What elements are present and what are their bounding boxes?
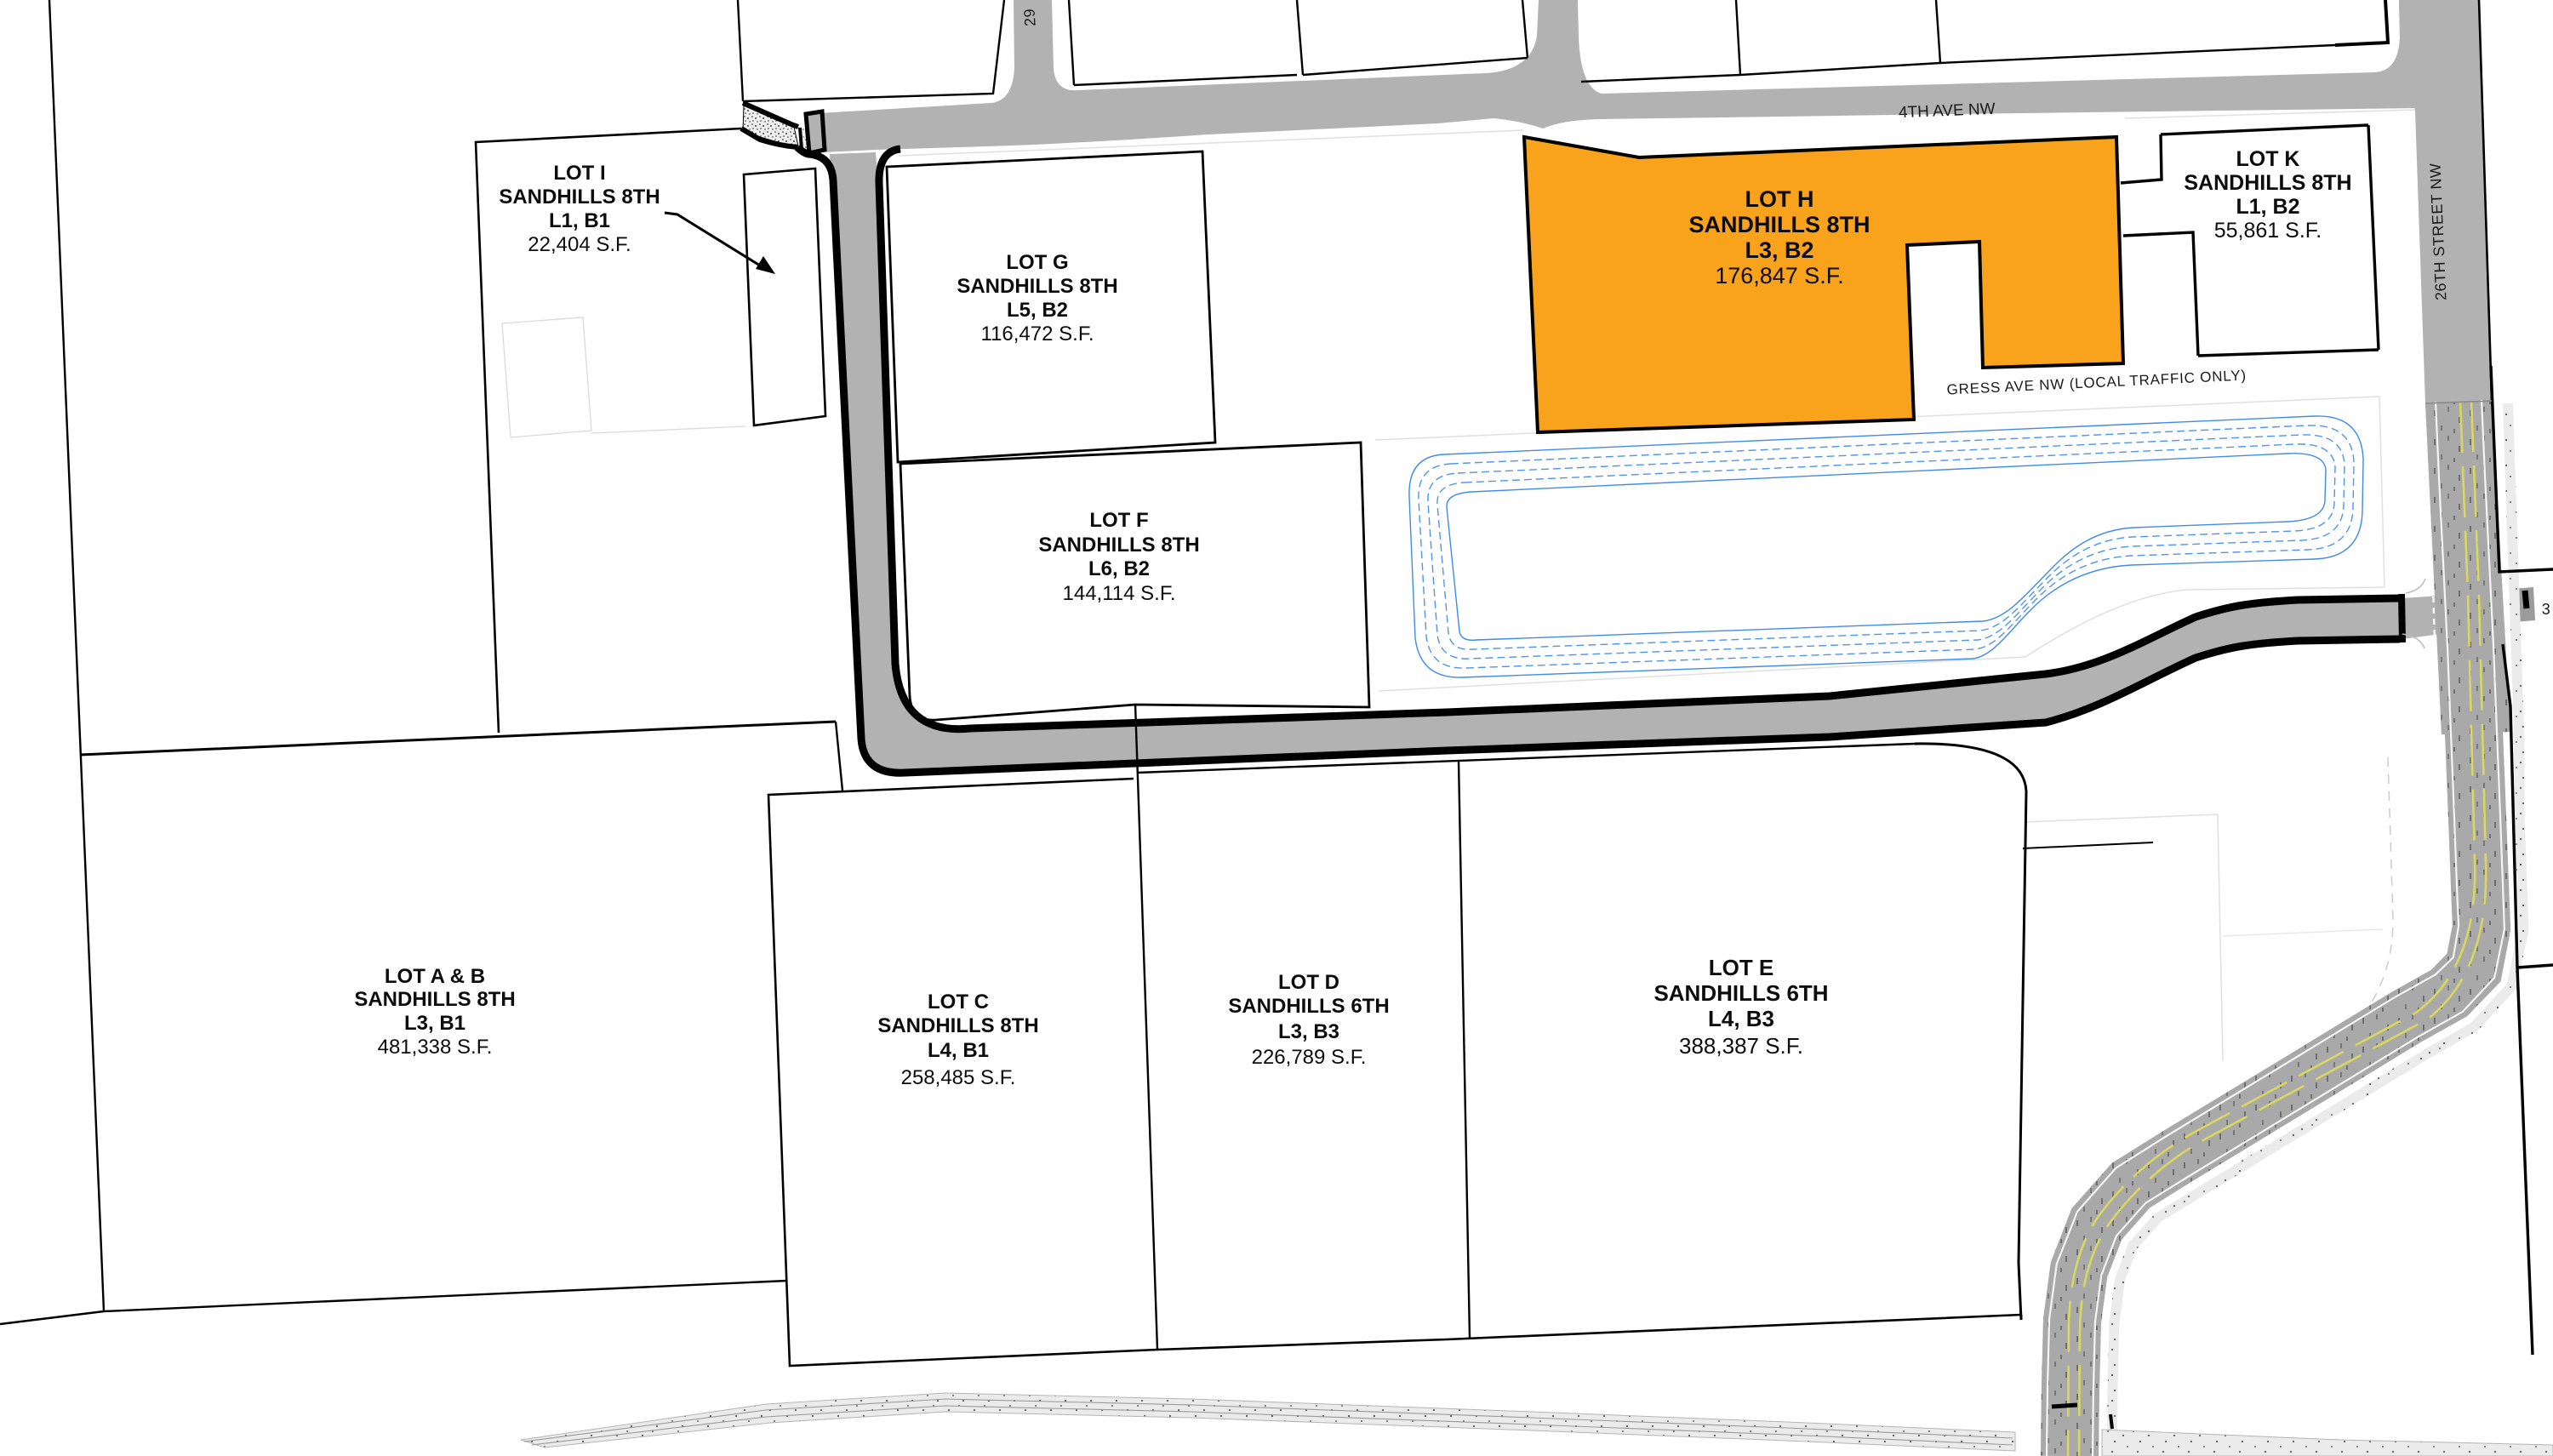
svg-text:L5, B2: L5, B2 <box>1007 299 1068 322</box>
svg-text:22,404 S.F.: 22,404 S.F. <box>528 233 631 256</box>
svg-text:3: 3 <box>2542 601 2551 618</box>
svg-text:L1, B1: L1, B1 <box>549 209 610 232</box>
svg-text:SANDHILLS 8TH: SANDHILLS 8TH <box>354 988 515 1011</box>
svg-text:LOT A & B: LOT A & B <box>385 965 485 988</box>
svg-text:55,861 S.F.: 55,861 S.F. <box>2214 219 2322 243</box>
svg-text:L6, B2: L6, B2 <box>1088 557 1150 580</box>
svg-text:LOT G: LOT G <box>1006 251 1068 274</box>
svg-text:LOT H: LOT H <box>1745 186 1814 212</box>
svg-text:SANDHILLS 6TH: SANDHILLS 6TH <box>1653 980 1828 1006</box>
svg-text:SANDHILLS 8TH: SANDHILLS 8TH <box>877 1014 1038 1037</box>
svg-text:LOT K: LOT K <box>2236 147 2300 171</box>
svg-text:176,847 S.F.: 176,847 S.F. <box>1715 263 1844 288</box>
svg-text:L4, B1: L4, B1 <box>928 1039 989 1062</box>
svg-text:388,387 S.F.: 388,387 S.F. <box>1679 1033 1803 1059</box>
svg-text:SANDHILLS 8TH: SANDHILLS 8TH <box>2184 171 2351 195</box>
svg-text:226,789 S.F.: 226,789 S.F. <box>1252 1046 1367 1069</box>
svg-text:LOT I: LOT I <box>553 162 605 185</box>
svg-text:116,472 S.F.: 116,472 S.F. <box>981 323 1094 345</box>
svg-text:481,338 S.F.: 481,338 S.F. <box>378 1036 493 1059</box>
svg-text:LOT F: LOT F <box>1089 509 1148 532</box>
svg-text:SANDHILLS 8TH: SANDHILLS 8TH <box>1038 534 1199 557</box>
svg-text:LOT D: LOT D <box>1278 971 1339 994</box>
svg-text:L3, B1: L3, B1 <box>404 1012 465 1035</box>
svg-text:LOT E: LOT E <box>1709 955 1774 980</box>
svg-text:SANDHILLS 8TH: SANDHILLS 8TH <box>1688 212 1870 237</box>
svg-text:SANDHILLS 8TH: SANDHILLS 8TH <box>957 275 1117 298</box>
svg-text:SANDHILLS 6TH: SANDHILLS 6TH <box>1228 995 1389 1018</box>
svg-text:29: 29 <box>1020 8 1038 26</box>
svg-text:258,485 S.F.: 258,485 S.F. <box>901 1066 1016 1089</box>
svg-text:LOT C: LOT C <box>928 991 989 1013</box>
svg-text:L3, B3: L3, B3 <box>1278 1020 1339 1043</box>
svg-text:144,114 S.F.: 144,114 S.F. <box>1063 582 1176 605</box>
svg-text:L1, B2: L1, B2 <box>2236 195 2299 219</box>
svg-text:SANDHILLS 8TH: SANDHILLS 8TH <box>499 186 660 208</box>
svg-text:L4, B3: L4, B3 <box>1708 1006 1774 1031</box>
svg-text:L3, B2: L3, B2 <box>1745 237 1813 263</box>
